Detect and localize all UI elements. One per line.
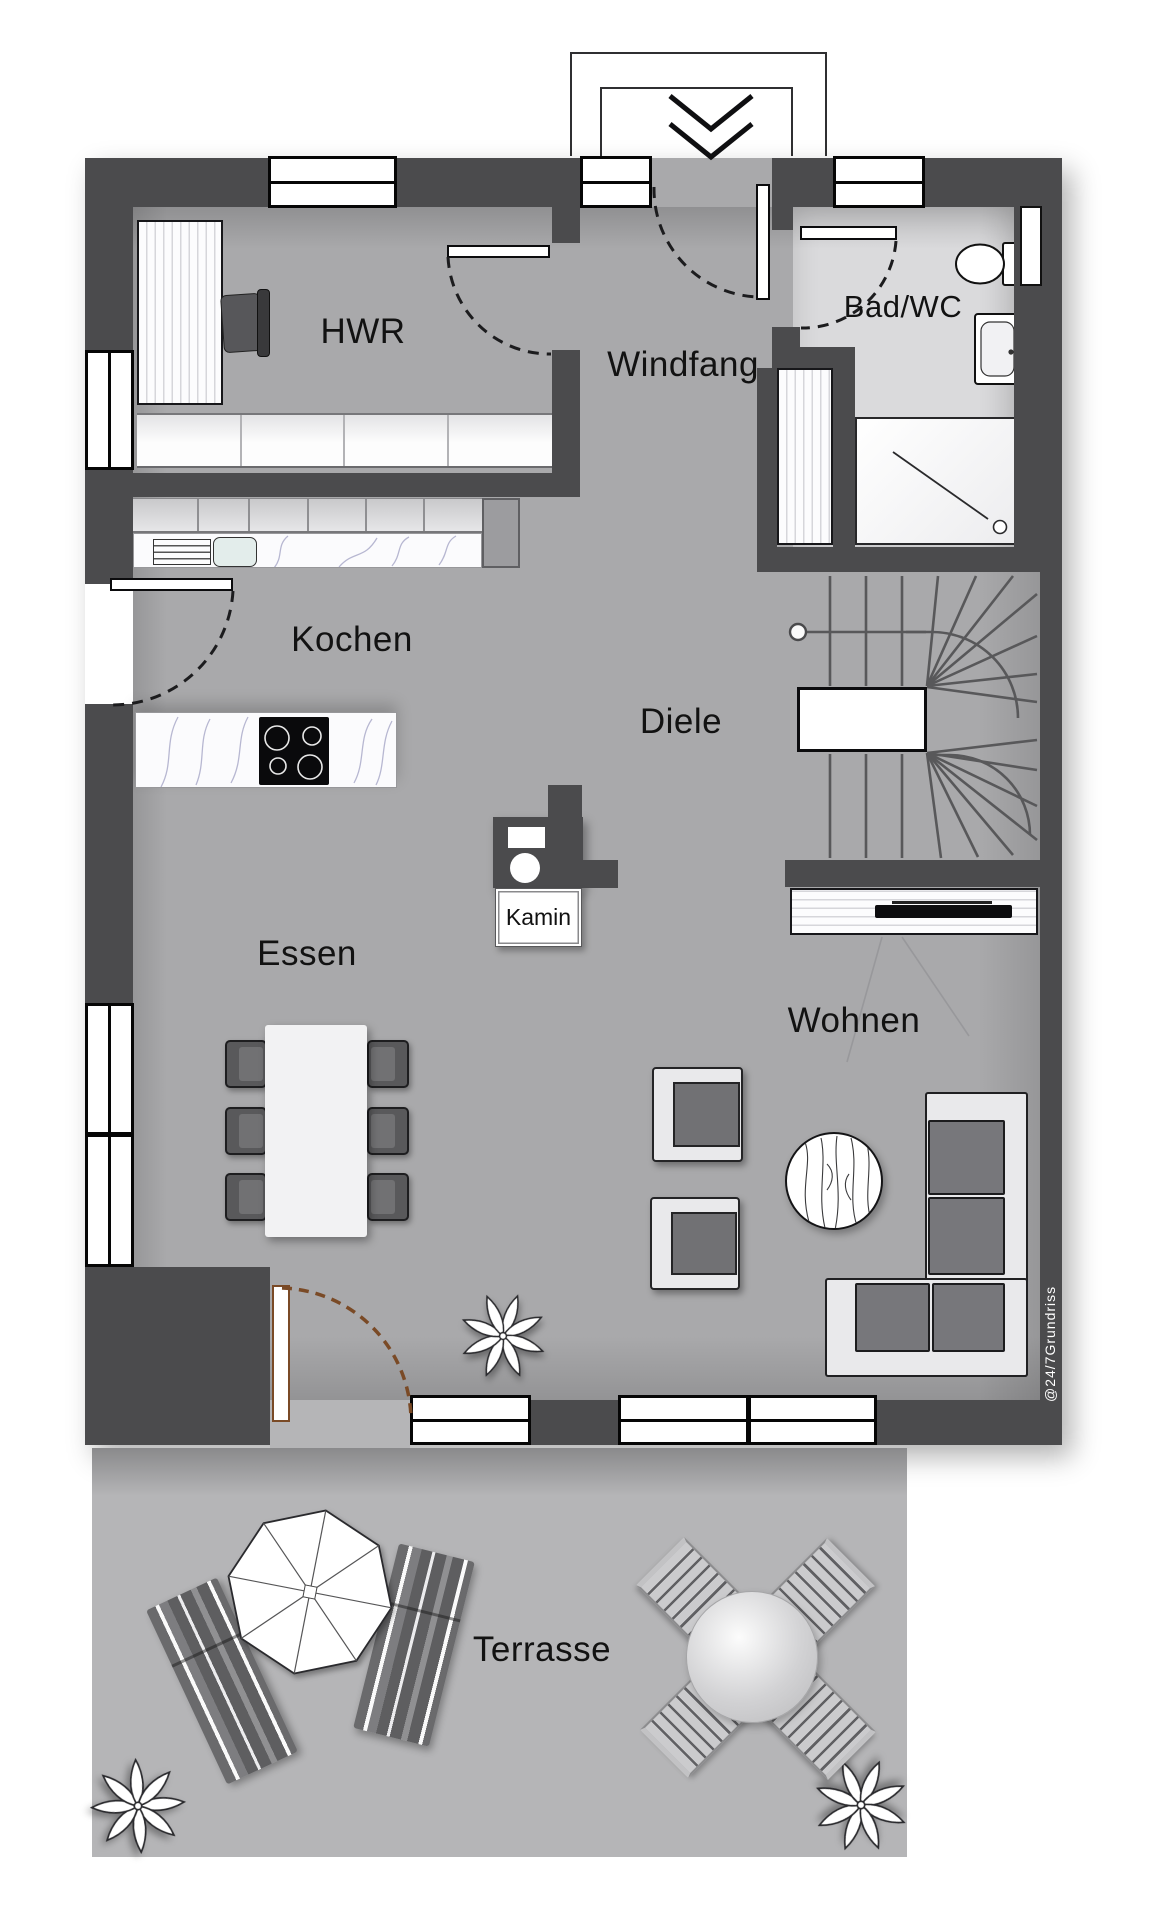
porch-inner-outline (600, 87, 793, 156)
door-swing-kitchen (111, 591, 233, 705)
door-swing-entrance (654, 187, 758, 297)
room-label-diele: Diele (640, 702, 722, 742)
door-swing-hwr (448, 257, 551, 354)
door-swing-terrace (282, 1288, 411, 1419)
room-label-bad-wc: Bad/WC (844, 289, 962, 325)
room-label-terrasse: Terrasse (473, 1630, 611, 1670)
room-label-windfang: Windfang (607, 345, 759, 385)
watermark: @24/7Grundriss (1042, 1262, 1058, 1402)
room-label-wohnen: Wohnen (788, 1001, 921, 1041)
room-label-kochen: Kochen (291, 620, 413, 660)
room-label-hwr: HWR (320, 312, 405, 352)
door-swing-arcs (0, 0, 1152, 1909)
room-label-essen: Essen (257, 934, 357, 974)
floorplan-canvas: Kamin (0, 0, 1152, 1909)
